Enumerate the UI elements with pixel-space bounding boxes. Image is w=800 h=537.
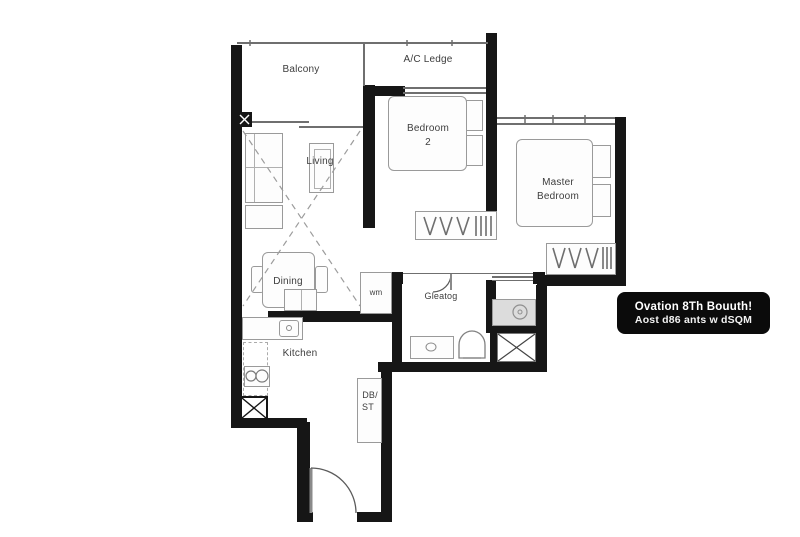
side-table [245, 205, 283, 229]
entrance-door-icon [311, 468, 356, 513]
room-label-ac-ledge: A/C Ledge [393, 54, 463, 66]
kitchen-tall-cabinet [284, 289, 317, 311]
room-label-kitchen: Kitchen [275, 348, 325, 360]
tv-console [309, 143, 334, 193]
bath-vanity [410, 336, 454, 359]
room-label-master-line2: Bedroom [530, 191, 586, 203]
wall-corridor-seg-right [533, 272, 545, 284]
master-pillow [592, 184, 611, 217]
label-st: ST [356, 402, 380, 413]
wall-master-right [615, 117, 626, 285]
wall-bottom-right-seg [357, 512, 392, 522]
balcony-sliding-door-line [299, 126, 363, 128]
room-label-master-line1: Master [530, 177, 586, 189]
label-db: DB/ [358, 390, 382, 401]
sofa [245, 133, 283, 203]
wall-bath-bottom [378, 362, 546, 372]
room-label-bedroom2-line1: Bedroom [398, 123, 458, 135]
bedroom2-wardrobe [415, 211, 497, 240]
shower-stall [492, 299, 536, 326]
bath-door-icon [433, 274, 451, 292]
kitchen-sink [279, 320, 299, 337]
master-window-line [497, 117, 615, 119]
master-window-line [497, 123, 615, 125]
wall-master-bottom [537, 275, 626, 286]
wall-shelter-top [490, 325, 536, 333]
wall-foyer-left [297, 422, 310, 517]
wall-bedroom2-top [363, 86, 405, 96]
room-label-balcony: Balcony [270, 64, 332, 76]
shelter-box [497, 333, 536, 362]
label-washer: wm [363, 288, 389, 297]
wall-left [231, 45, 242, 428]
kitchen-hob [244, 366, 270, 387]
cabinet-divider-line [301, 290, 302, 310]
room-label-bath: Gleatog [415, 291, 467, 302]
room-label-bedroom2-line2: 2 [398, 137, 458, 149]
corridor-boundary-line [403, 273, 533, 274]
room-label-dining: Dining [263, 276, 313, 288]
balcony-symbol-box [237, 112, 252, 127]
plan-linework [0, 0, 800, 537]
badge-line1: Ovation 8Th Bouuth! [635, 301, 753, 313]
bedroom2-window-line [403, 87, 486, 89]
master-wardrobe [546, 243, 616, 275]
room-label-living: Living [295, 156, 345, 168]
wall-foyer-right [381, 362, 392, 517]
badge-line2: Aost d86 ants w dSQM [635, 314, 752, 326]
bath-sliding-door-line [492, 280, 533, 281]
sofa-cushion-line [246, 167, 282, 168]
kitchen-shaft-box [240, 396, 268, 420]
master-pillow [592, 145, 611, 178]
acledge-edge-line [367, 42, 488, 44]
wall-acledge-right [486, 33, 497, 228]
toilet-icon [459, 331, 485, 358]
wall-bedroom2-left [363, 85, 375, 228]
listing-watermark-badge: Ovation 8Th Bouuth! Aost d86 ants w dSQM [617, 292, 770, 334]
bedroom2-window-line [403, 92, 486, 94]
balcony-acledge-divider-line [363, 43, 365, 86]
bedroom2-pillow [466, 100, 483, 131]
bath-sliding-door-line [492, 276, 533, 278]
wall-shelter-right [536, 285, 547, 372]
balcony-parapet-line [237, 42, 367, 44]
bedroom2-pillow [466, 135, 483, 166]
tv-console-inner [314, 149, 331, 189]
sofa-cushion-line [254, 134, 255, 202]
